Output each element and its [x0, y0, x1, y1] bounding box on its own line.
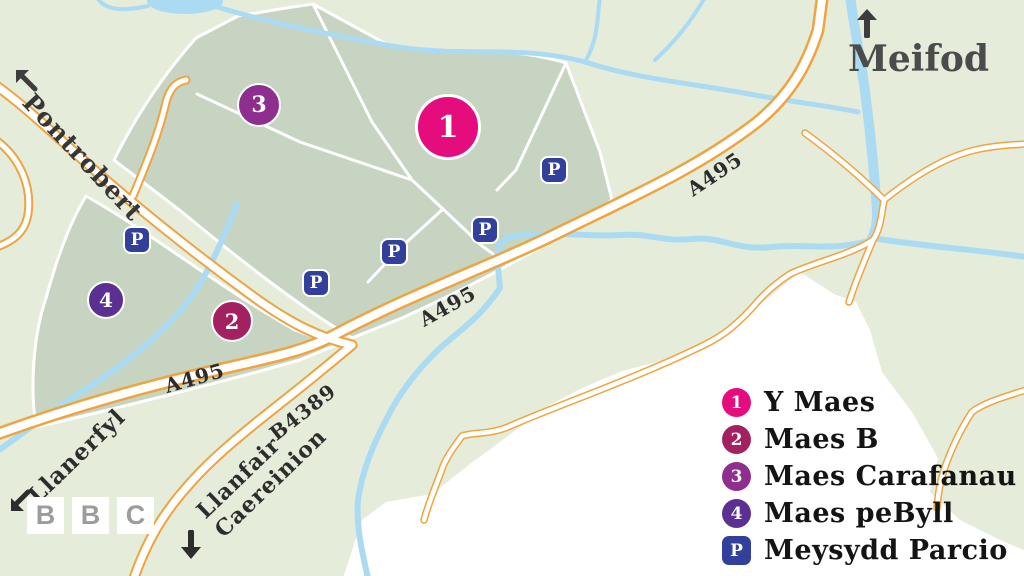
parking-symbol: P — [131, 230, 144, 250]
venue-marker-2: 2 — [211, 300, 253, 342]
parking-marker-3: P — [380, 238, 408, 266]
parking-symbol: P — [548, 160, 561, 180]
venue-marker-3-number: 3 — [251, 92, 266, 118]
legend-label-y-maes: Y Maes — [764, 387, 875, 418]
venue-marker-1-number: 1 — [438, 110, 459, 145]
parking-symbol: P — [310, 273, 323, 293]
legend-item-y-maes: 1 Y Maes — [722, 388, 1017, 417]
map-canvas: 1 3 2 4 P P P P P A495 A495 A495 B4389 P… — [0, 0, 1024, 576]
legend-item-maes-pebyll: 4 Maes peByll — [722, 499, 1017, 528]
parking-marker-5: P — [540, 156, 568, 184]
pond — [147, 0, 223, 14]
legend-label-maes-b: Maes B — [764, 424, 879, 455]
arrow-up-icon — [852, 8, 882, 38]
legend-marker-parking: P — [722, 536, 751, 565]
bbc-logo-block-2: B — [72, 497, 109, 534]
bbc-logo: B B C — [27, 497, 162, 534]
destination-meifod: Meifod — [848, 38, 989, 80]
legend-marker-2: 2 — [722, 425, 751, 454]
arrow-down-icon — [176, 530, 206, 560]
parking-symbol: P — [479, 220, 492, 240]
venue-marker-3: 3 — [237, 83, 281, 127]
legend-item-maes-b: 2 Maes B — [722, 425, 1017, 454]
map-legend: 1 Y Maes 2 Maes B 3 Maes Carafanau 4 Mae… — [722, 388, 1017, 573]
legend-label-parking: Meysydd Parcio — [764, 535, 1008, 566]
minor-road-b — [884, 144, 1024, 200]
legend-label-maes-carafanau: Maes Carafanau — [764, 461, 1017, 492]
legend-marker-4: 4 — [722, 499, 751, 528]
venue-marker-2-number: 2 — [225, 309, 240, 334]
venue-marker-4: 4 — [87, 281, 125, 319]
venue-marker-4-number: 4 — [99, 288, 113, 312]
legend-marker-3: 3 — [722, 462, 751, 491]
legend-item-parking: P Meysydd Parcio — [722, 536, 1017, 565]
legend-marker-1: 1 — [722, 388, 751, 417]
venue-marker-1: 1 — [415, 94, 481, 160]
parking-symbol: P — [388, 242, 401, 262]
legend-label-maes-pebyll: Maes peByll — [764, 498, 954, 529]
legend-item-maes-carafanau: 3 Maes Carafanau — [722, 462, 1017, 491]
bbc-logo-block-1: B — [27, 497, 64, 534]
parking-marker-2: P — [302, 269, 330, 297]
parking-marker-1: P — [123, 226, 151, 254]
parking-marker-4: P — [471, 216, 499, 244]
bbc-logo-block-3: C — [117, 497, 154, 534]
